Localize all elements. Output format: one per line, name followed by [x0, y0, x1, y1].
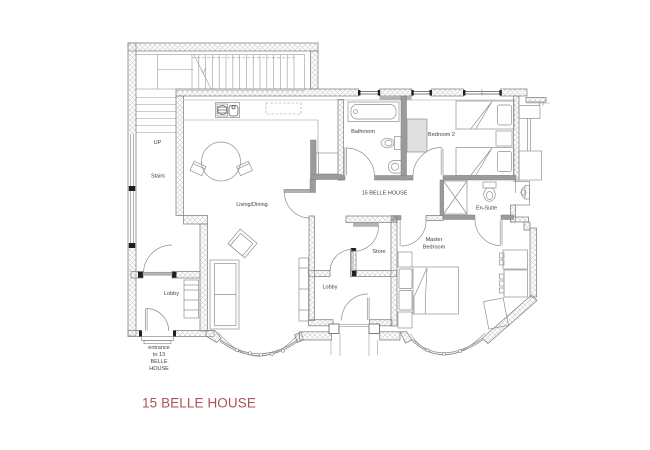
svg-text:to 13: to 13 [153, 352, 165, 358]
svg-text:Stairs: Stairs [151, 174, 165, 180]
svg-text:Lobby: Lobby [164, 291, 179, 297]
svg-text:BELLE: BELLE [150, 359, 167, 365]
svg-text:Bathroom: Bathroom [351, 129, 375, 135]
svg-text:HOUSE: HOUSE [149, 366, 169, 372]
svg-text:15 BELLE HOUSE: 15 BELLE HOUSE [142, 396, 256, 411]
svg-text:entrance: entrance [148, 345, 169, 351]
svg-text:Lobby: Lobby [323, 285, 338, 291]
svg-text:Bedroom: Bedroom [423, 245, 446, 251]
svg-text:15 BELLE HOUSE: 15 BELLE HOUSE [362, 191, 408, 197]
svg-text:UP: UP [154, 140, 162, 146]
svg-text:Store: Store [372, 249, 385, 255]
svg-text:Living/Dining: Living/Dining [236, 202, 268, 208]
svg-text:Bedroom 2: Bedroom 2 [428, 132, 455, 138]
svg-text:Master: Master [426, 237, 443, 243]
svg-text:En-Suite: En-Suite [476, 206, 497, 212]
